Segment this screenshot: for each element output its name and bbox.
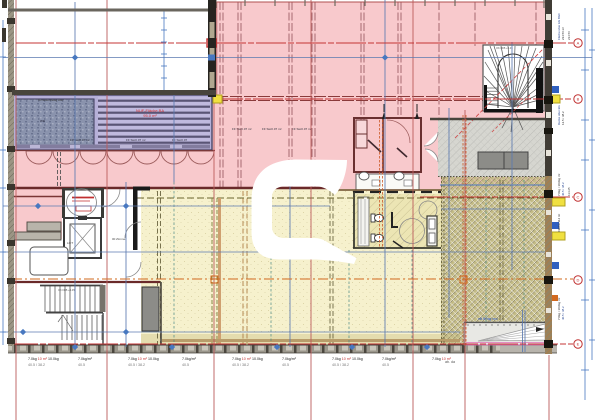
svg-text:FF SwO.07 m²: FF SwO.07 m² — [262, 127, 282, 131]
svg-text:Fläche 114 m²: Fläche 114 m² — [557, 214, 561, 232]
svg-text:00 Zimmer: 00 Zimmer — [112, 237, 126, 241]
svg-text:40.5: 40.5 — [78, 363, 85, 367]
svg-text:A: A — [577, 41, 580, 46]
svg-text:FF SwO.07 m²: FF SwO.07 m² — [70, 138, 90, 142]
svg-text:7.0kg 10 m² 10.0kg: 7.0kg 10 m² 10.0kg — [28, 357, 59, 361]
svg-text:234.56 m²: 234.56 m² — [561, 27, 565, 40]
svg-text:95.0 m²: 95.0 m² — [143, 113, 157, 118]
svg-text:40.5 / 38.2: 40.5 / 38.2 — [128, 363, 145, 367]
svg-text:7.0kg 10 m² 10.0kg: 7.0kg 10 m² 10.0kg — [232, 357, 263, 361]
svg-text:7.0kg/m²: 7.0kg/m² — [78, 357, 93, 361]
svg-text:WD: WD — [40, 119, 46, 123]
svg-text:FF SwO.07 m²: FF SwO.07 m² — [232, 127, 252, 131]
svg-text:40.5 / 38.2: 40.5 / 38.2 — [561, 306, 565, 320]
svg-text:7.0kg/m²: 7.0kg/m² — [182, 357, 197, 361]
svg-text:7.0kg/m²: 7.0kg/m² — [382, 357, 397, 361]
svg-text:mit Belag neu: mit Belag neu — [478, 317, 498, 321]
svg-text:FF SwO.07 m²: FF SwO.07 m² — [292, 127, 312, 131]
svg-text:40.5: 40.5 — [282, 363, 289, 367]
svg-text:12.5 / 38.2: 12.5 / 38.2 — [561, 111, 565, 125]
svg-text:ab. da: ab. da — [445, 360, 455, 364]
svg-text:LIFT: LIFT — [67, 241, 73, 245]
svg-text:FF SwO.07 m²: FF SwO.07 m² — [126, 138, 146, 142]
svg-text:234.56: 234.56 — [567, 31, 571, 40]
svg-text:40.5: 40.5 — [182, 363, 189, 367]
svg-text:7.0kg 10 m² 10.0kg: 7.0kg 10 m² 10.0kg — [128, 357, 159, 361]
svg-text:40.5: 40.5 — [382, 363, 389, 367]
svg-text:40.5 / 38.2: 40.5 / 38.2 — [561, 182, 565, 196]
svg-text:114.25: 114.25 — [567, 187, 571, 196]
svg-text:B: B — [577, 97, 580, 102]
svg-text:40.5 / 38.2: 40.5 / 38.2 — [232, 363, 249, 367]
svg-text:OK FFB +3.45: OK FFB +3.45 — [58, 288, 75, 292]
svg-text:E: E — [577, 342, 580, 347]
svg-text:7.0kg/m²: 7.0kg/m² — [282, 357, 297, 361]
svg-text:40.5 / 38.2: 40.5 / 38.2 — [332, 363, 349, 367]
svg-text:Terrassenbelag Holz: Terrassenbelag Holz — [38, 98, 64, 102]
svg-text:7.0kg 10 m² 10.0kg: 7.0kg 10 m² 10.0kg — [332, 357, 363, 361]
svg-text:D: D — [577, 278, 580, 283]
svg-text:C: C — [577, 195, 580, 200]
svg-text:40.5 / 38.2: 40.5 / 38.2 — [28, 363, 45, 367]
svg-text:OK FFB +3.45: OK FFB +3.45 — [496, 46, 513, 50]
